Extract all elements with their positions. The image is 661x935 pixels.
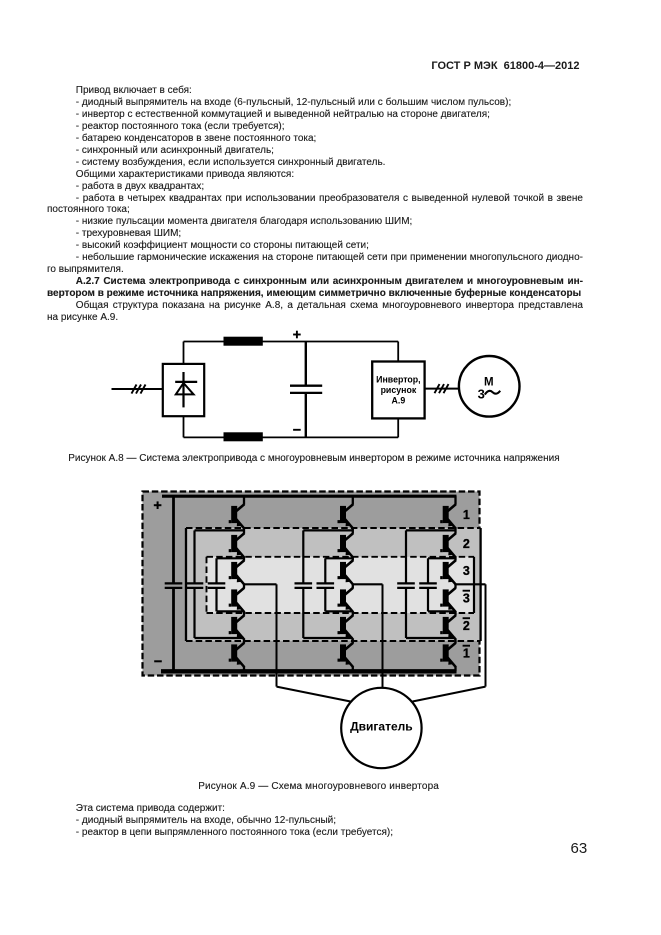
svg-text:2: 2: [463, 619, 470, 633]
svg-text:М: М: [484, 377, 494, 389]
svg-text:Двигатель: Двигатель: [350, 720, 413, 734]
svg-text:3: 3: [463, 592, 470, 606]
svg-text:3: 3: [463, 564, 470, 578]
svg-text:2: 2: [463, 537, 470, 551]
svg-text:Инвертор,: Инвертор,: [376, 375, 420, 385]
svg-text:А.9: А.9: [392, 396, 406, 406]
svg-text:1: 1: [463, 647, 470, 661]
svg-text:1: 1: [463, 508, 470, 522]
svg-text:рисунок: рисунок: [381, 385, 417, 395]
svg-text:3: 3: [478, 386, 485, 401]
